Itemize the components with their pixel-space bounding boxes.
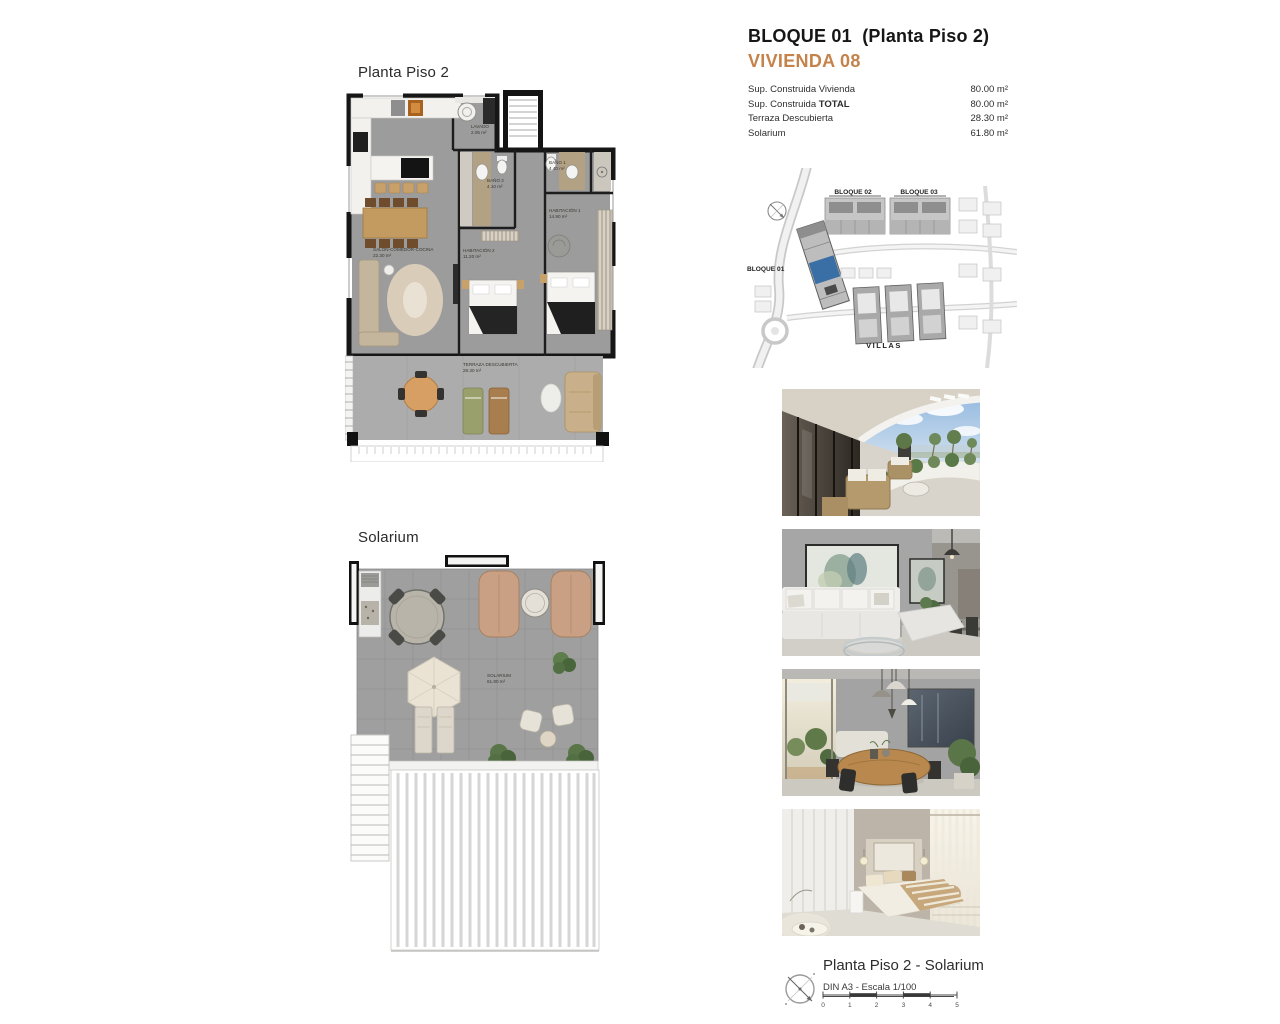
svg-text:61.80 m²: 61.80 m²	[487, 679, 506, 684]
label-bloque03: BLOQUE 03	[900, 189, 938, 196]
label-salon: SALÓN-COMEDOR-COCINA	[373, 246, 434, 252]
spec-value: 80.00 m²	[971, 98, 1009, 113]
brochure-page: Planta Piso 2	[0, 0, 1280, 1024]
photo-terrace-view	[782, 389, 980, 516]
lower-deck	[351, 446, 603, 462]
terrace-sofa	[565, 372, 601, 432]
floorplan-piso2: LAVADO 2.05 m² BAÑO 2 4.10 m² BAÑO 1 4.4…	[345, 88, 618, 462]
spec-row: Solarium 61.80 m²	[748, 127, 1008, 142]
svg-text:5: 5	[955, 1002, 959, 1009]
photo-dining-room	[782, 669, 980, 796]
stairs	[351, 735, 389, 861]
unit-title: VIVIENDA 08	[748, 51, 1010, 72]
label-solarium: SOLARIUM	[487, 673, 511, 678]
scale-bar: 0 1 2 3 4 5	[821, 990, 961, 1010]
header-block: BLOQUE 01 (Planta Piso 2) VIVIENDA 08 Su…	[748, 26, 1010, 141]
compass-icon	[778, 964, 822, 1012]
plan2-title: Solarium	[358, 529, 419, 546]
bright-window	[930, 809, 980, 936]
photo-living-room	[782, 529, 980, 656]
stair-core	[503, 90, 543, 148]
footer-compass	[778, 964, 822, 1017]
label-lavado: LAVADO	[471, 124, 489, 129]
map-compass-icon	[768, 202, 786, 220]
label-hab2: HABITACIÓN 2	[463, 247, 495, 253]
spec-row: Sup. Construida Vivienda 80.00 m²	[748, 83, 1008, 98]
svg-text:28.30 m²: 28.30 m²	[463, 368, 482, 373]
railing-area	[357, 761, 599, 951]
spec-value: 61.80 m²	[971, 127, 1009, 142]
block-title: BLOQUE 01 (Planta Piso 2)	[748, 26, 1010, 47]
svg-text:4.10 m²: 4.10 m²	[487, 184, 503, 189]
spec-value: 80.00 m²	[971, 83, 1009, 98]
label-terraza: TERRAZA DESCUBIERTA	[463, 362, 519, 367]
label-bloque01: BLOQUE 01	[747, 266, 785, 273]
dark-artwork	[908, 689, 974, 747]
label-bano1: BAÑO 1	[549, 159, 566, 165]
dining-room-wood-table	[782, 669, 980, 796]
building-bloque02	[825, 196, 885, 234]
footer-title: Planta Piso 2 - Solarium	[823, 957, 984, 974]
svg-text:14.90 m²: 14.90 m²	[549, 214, 568, 219]
svg-text:1: 1	[848, 1002, 852, 1009]
terrace-pouf	[541, 384, 561, 412]
label-villas: VILLAS	[866, 341, 902, 350]
label-bloque02: BLOQUE 02	[834, 189, 872, 196]
terrace-balcony-sea-view	[782, 389, 980, 516]
outdoor-kitchenette	[359, 571, 381, 637]
label-hab1: HABITACIÓN 1	[549, 207, 581, 213]
plan1-title: Planta Piso 2	[358, 64, 449, 81]
svg-text:3: 3	[902, 1002, 906, 1009]
site-plan: BLOQUE 02 BLOQUE 03 BLOQUE 01 VILLAS	[745, 168, 1017, 368]
dining-table	[363, 198, 427, 248]
svg-text:4.40 m²: 4.40 m²	[549, 166, 565, 171]
tv-unit	[453, 264, 458, 304]
spec-row: Sup. Construida TOTAL 80.00 m²	[748, 98, 1008, 113]
bedroom-wardrobe-bed	[782, 809, 980, 936]
spec-row: Terraza Descubierta 28.30 m²	[748, 112, 1008, 127]
living-room-corner-sofa	[782, 529, 980, 656]
window-with-plants	[782, 679, 836, 796]
svg-text:2.05 m²: 2.05 m²	[471, 130, 487, 135]
building-bloque03	[890, 196, 950, 234]
svg-text:4: 4	[928, 1002, 932, 1009]
villas-buildings	[853, 283, 946, 344]
svg-text:2: 2	[875, 1002, 879, 1009]
spec-table: Sup. Construida Vivienda 80.00 m² Sup. C…	[748, 83, 1008, 141]
spec-value: 28.30 m²	[971, 112, 1009, 127]
floorplan-solarium: SOLARIUM 61.80 m²	[345, 555, 618, 965]
svg-text:0: 0	[821, 1002, 825, 1009]
label-bano2: BAÑO 2	[487, 177, 504, 183]
svg-text:11.20 m²: 11.20 m²	[463, 254, 481, 259]
svg-text:22.30 m²: 22.30 m²	[373, 253, 392, 258]
photo-bedroom	[782, 809, 980, 936]
